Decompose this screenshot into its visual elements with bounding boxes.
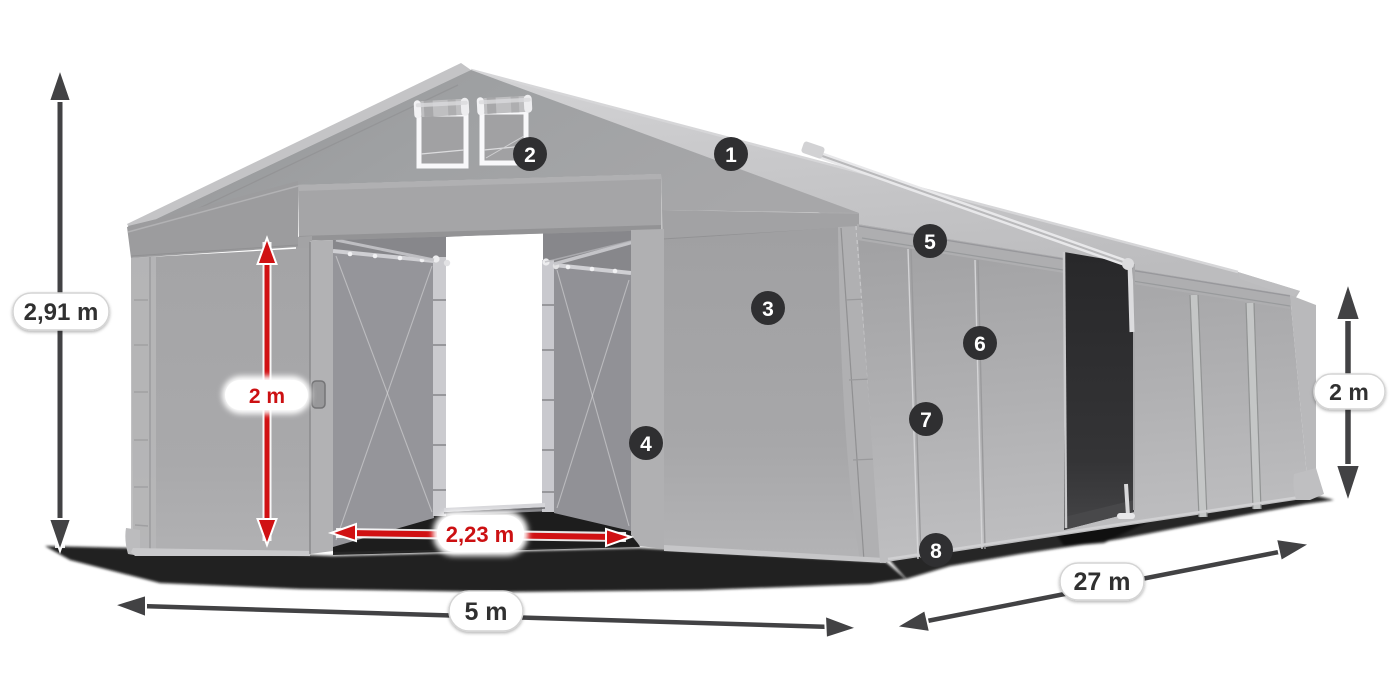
- svg-text:2: 2: [524, 144, 536, 167]
- svg-text:5: 5: [924, 231, 936, 254]
- svg-text:7: 7: [920, 409, 932, 432]
- svg-text:4: 4: [640, 433, 652, 456]
- svg-text:5 m: 5 m: [464, 598, 507, 626]
- svg-text:2,23 m: 2,23 m: [446, 522, 515, 547]
- svg-text:2 m: 2 m: [1329, 379, 1369, 405]
- svg-text:8: 8: [930, 540, 942, 563]
- svg-text:2 m: 2 m: [249, 385, 285, 408]
- svg-text:6: 6: [974, 333, 986, 356]
- svg-text:27 m: 27 m: [1074, 568, 1131, 596]
- svg-text:2,91 m: 2,91 m: [24, 299, 99, 326]
- svg-text:1: 1: [725, 144, 737, 167]
- svg-text:3: 3: [762, 298, 774, 321]
